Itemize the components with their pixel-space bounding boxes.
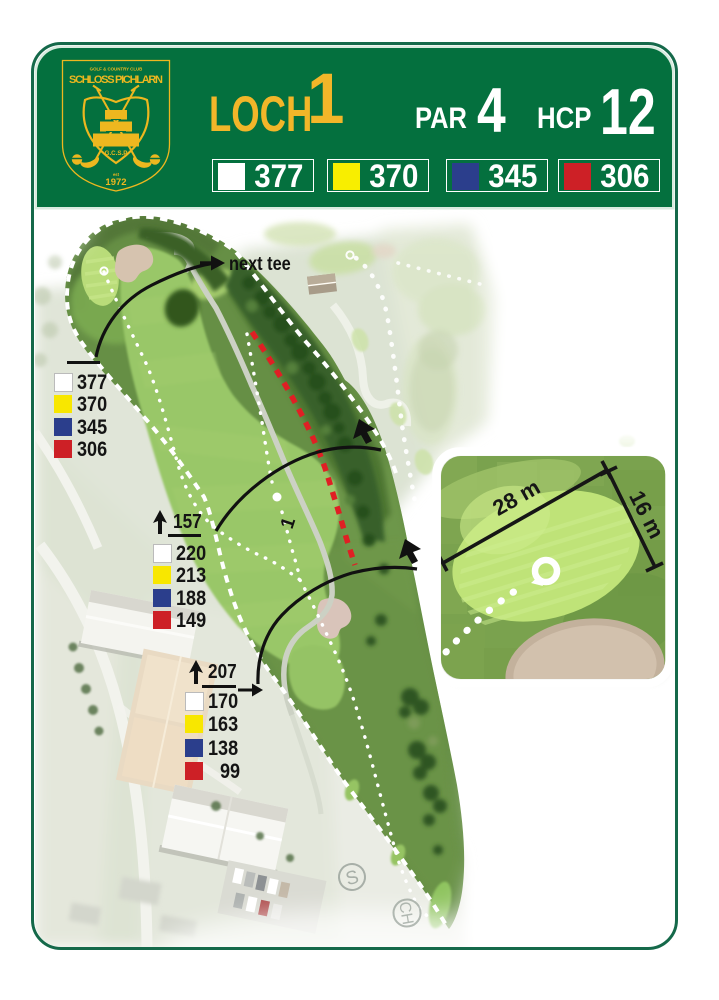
svg-text:GOLF & COUNTRY CLUB: GOLF & COUNTRY CLUB	[90, 67, 143, 72]
svg-text:1972: 1972	[105, 177, 126, 188]
svg-text:G.C.S.P: G.C.S.P	[105, 150, 128, 157]
svg-text:SCHLOSS PICHLARN: SCHLOSS PICHLARN	[69, 74, 163, 86]
